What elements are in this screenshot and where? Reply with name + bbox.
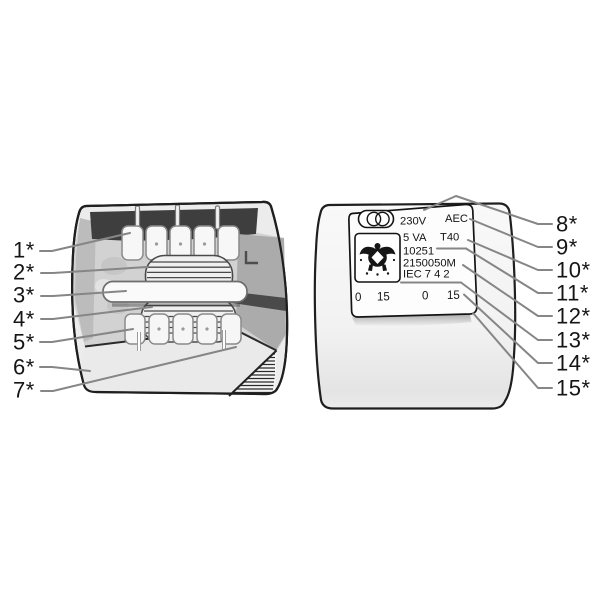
transformer-symbol-icon — [359, 211, 394, 228]
terminal-mark-0b: 0 — [422, 291, 428, 303]
terminal-mark-15a: 15 — [377, 292, 390, 304]
terminal-block — [122, 226, 143, 260]
diagram-canvas: 230V AEC 5 VA T40 10251 2150050M IEC 7 4… — [0, 0, 605, 605]
callout-7: 7* — [13, 378, 35, 403]
pin — [176, 205, 180, 228]
callout-8: 8* — [556, 212, 578, 237]
label-thermal-class: T40 — [440, 232, 459, 244]
label-power: 5 VA — [403, 232, 427, 244]
figure: 230V AEC 5 VA T40 10251 2150050M IEC 7 4… — [0, 0, 605, 605]
label-code: 10251 — [403, 246, 434, 258]
callout-6: 6* — [13, 355, 35, 380]
left-callouts: 1* 2* 3* 4* 5* 6* 7* — [13, 238, 35, 403]
callout-3: 3* — [13, 283, 35, 308]
terminal-block — [218, 226, 239, 260]
callout-4: 4* — [13, 307, 35, 332]
callout-11: 11* — [556, 281, 589, 306]
callout-2: 2* — [13, 260, 35, 285]
callout-10: 10* — [556, 258, 591, 283]
callout-13: 13* — [556, 328, 591, 353]
callout-12: 12* — [556, 304, 591, 329]
callout-9: 9* — [556, 235, 578, 260]
labeled-transformer-illustration: 230V AEC 5 VA T40 10251 2150050M IEC 7 4… — [315, 204, 515, 409]
callout-5: 5* — [13, 330, 35, 355]
label-voltage: 230V — [400, 216, 427, 228]
resin-blotch — [101, 257, 127, 275]
label-maker: AEC — [445, 213, 468, 225]
pin — [216, 206, 220, 229]
callout-15: 15* — [556, 376, 591, 401]
right-callouts: 8* 9* 10* 11* 12* 13* 14* 15* — [556, 212, 591, 401]
terminal-mark-15b: 15 — [447, 290, 460, 302]
callout-14: 14* — [556, 351, 591, 376]
terminal-mark-0a: 0 — [355, 292, 361, 304]
label-standard: IEC 7 4 2 — [403, 269, 450, 281]
cutaway-transformer-illustration — [72, 202, 287, 396]
